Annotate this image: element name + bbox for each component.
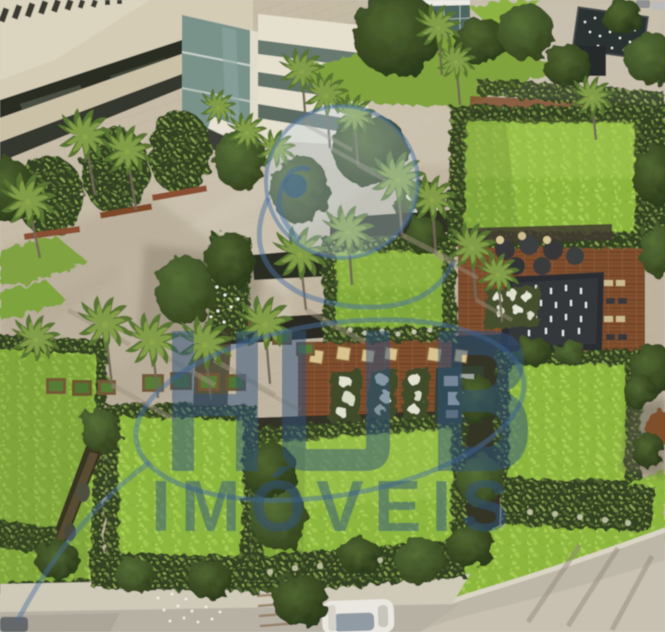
svg-text:IMÓVEIS: IMÓVEIS: [151, 466, 519, 547]
